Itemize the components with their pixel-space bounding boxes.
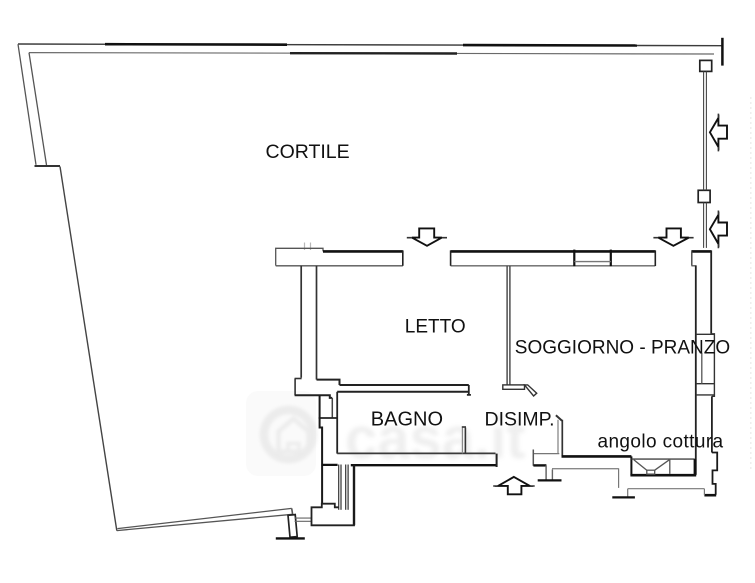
- svg-text:DISIMP.: DISIMP.: [485, 408, 555, 430]
- svg-text:angolo cottura: angolo cottura: [598, 431, 724, 452]
- svg-text:LETTO: LETTO: [405, 317, 466, 338]
- svg-text:BAGNO: BAGNO: [371, 408, 443, 430]
- svg-text:SOGGIORNO - PRANZO: SOGGIORNO - PRANZO: [515, 337, 730, 358]
- svg-text:CORTILE: CORTILE: [266, 141, 350, 163]
